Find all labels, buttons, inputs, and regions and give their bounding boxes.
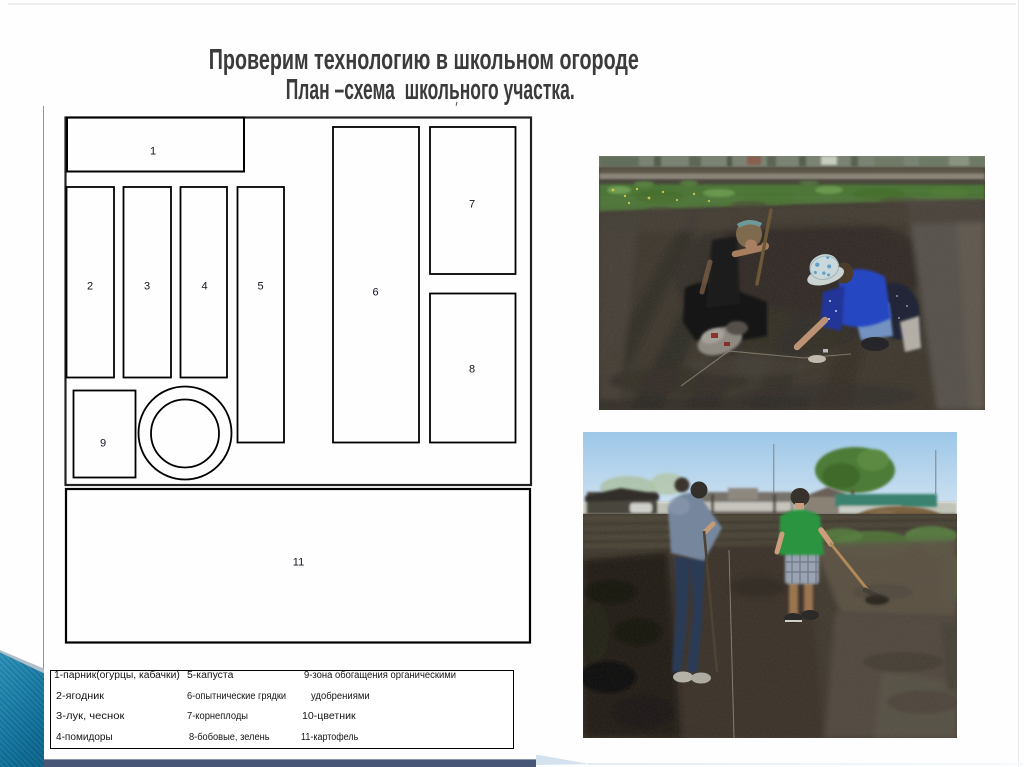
svg-text:4: 4 [201,281,207,293]
svg-text:1: 1 [150,146,156,158]
svg-text:3: 3 [144,281,150,293]
svg-text:7: 7 [469,199,475,211]
svg-text:11: 11 [293,557,304,569]
svg-text:6: 6 [372,287,378,299]
svg-text:5: 5 [257,281,263,293]
svg-text:8: 8 [469,364,475,376]
svg-text:9: 9 [100,438,106,450]
svg-text:2: 2 [87,281,93,293]
